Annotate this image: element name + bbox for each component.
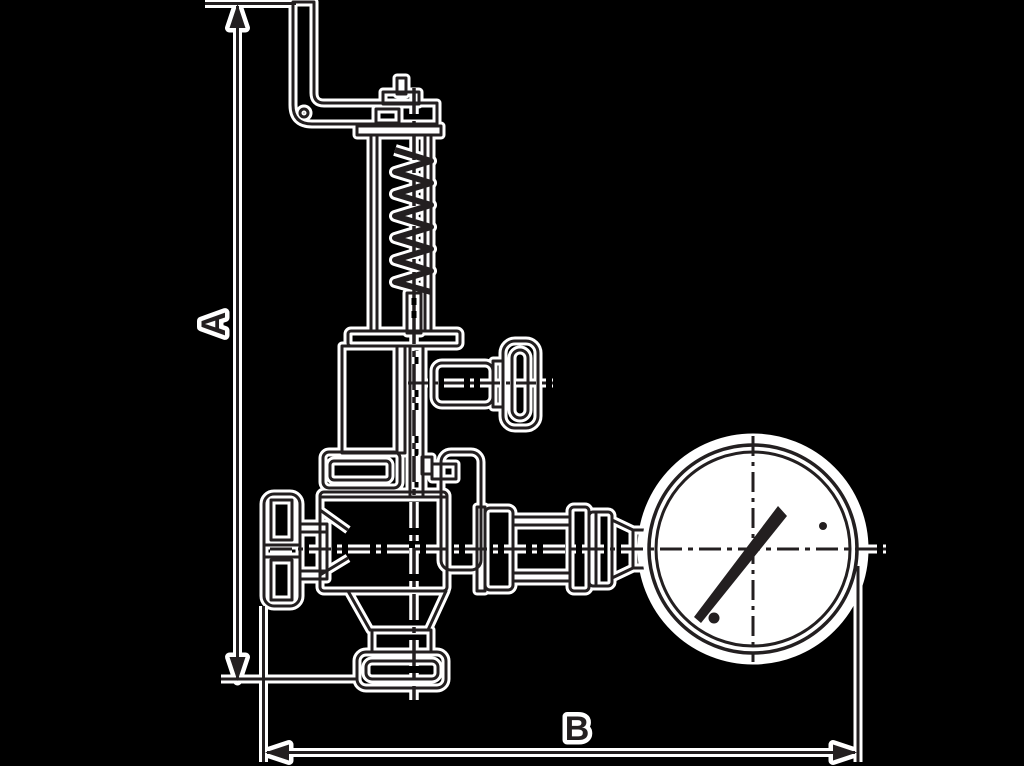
bottom-flange-inner bbox=[366, 661, 438, 679]
mid-flange-inner bbox=[330, 461, 390, 480]
gauge-screw-upper bbox=[819, 522, 827, 530]
gauge-screw-lower bbox=[709, 613, 720, 624]
valve-body bbox=[320, 492, 447, 591]
handwheel-spoke-top bbox=[271, 500, 292, 540]
dimension-b-label: B bbox=[565, 710, 590, 748]
valve-body bbox=[320, 492, 447, 591]
lever-slot bbox=[376, 109, 399, 123]
handwheel-spoke-bottom bbox=[271, 560, 292, 600]
relief-valve-technical-drawing: AB bbox=[0, 0, 1024, 766]
dimension-a-label: A bbox=[195, 312, 233, 337]
